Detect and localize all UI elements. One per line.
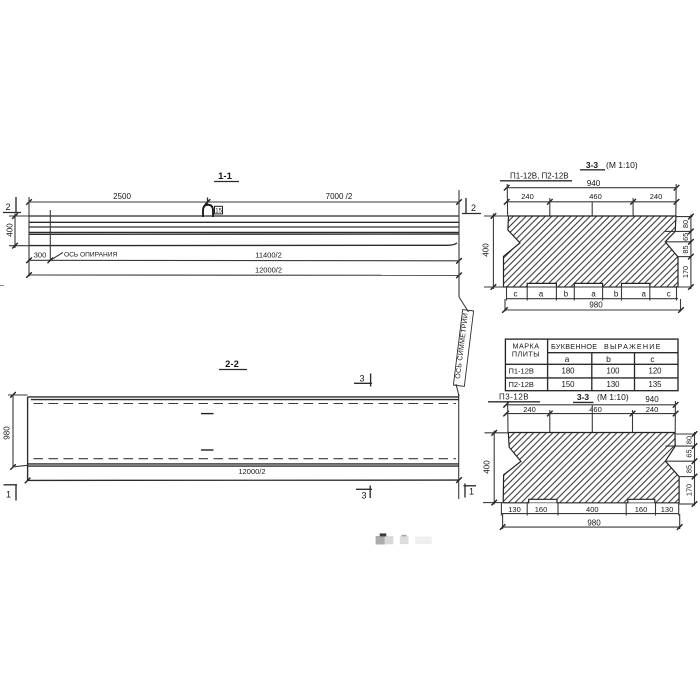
svg-text:a: a [539,290,544,299]
svg-text:3: 3 [361,491,366,501]
svg-text:a: a [642,290,647,299]
svg-text:1-1: 1-1 [218,171,232,182]
svg-text:(М 1:10): (М 1:10) [606,160,638,170]
svg-text:160: 160 [535,505,548,514]
svg-text:100: 100 [606,367,620,376]
svg-text:2-2: 2-2 [225,359,239,370]
svg-text:П1-12В: П1-12В [509,367,534,376]
svg-text:300: 300 [34,251,47,260]
svg-text:135: 135 [648,380,662,389]
svg-text:120: 120 [648,367,662,376]
svg-text:400: 400 [586,505,599,514]
svg-text:a: a [591,290,596,299]
svg-text:П1-12В, П2-12В: П1-12В, П2-12В [510,172,569,181]
svg-text:85: 85 [685,465,694,473]
svg-text:130: 130 [508,505,521,514]
svg-text:80: 80 [681,220,690,228]
svg-text:240: 240 [650,192,663,201]
svg-text:940: 940 [587,179,601,188]
svg-text:a: a [565,354,570,364]
svg-text:c: c [667,290,671,299]
svg-text:980: 980 [3,426,12,440]
svg-text:ОСЬ ОПИРАНИЯ: ОСЬ ОПИРАНИЯ [64,252,118,259]
svg-text:2: 2 [5,202,10,212]
svg-text:65: 65 [685,449,694,457]
svg-text:c: c [514,290,518,299]
svg-text:170: 170 [681,266,690,278]
svg-text:П3-12В: П3-12В [499,393,529,402]
svg-text:80: 80 [685,436,694,444]
svg-text:b: b [564,290,569,299]
svg-text:460: 460 [589,192,602,201]
svg-text:940: 940 [645,395,659,404]
svg-text:65: 65 [681,233,690,241]
svg-text:130: 130 [606,380,620,389]
svg-text:160: 160 [635,505,648,514]
svg-text:(М 1:10): (М 1:10) [597,392,629,402]
svg-text:ВЫРАЖЕНИЕ: ВЫРАЖЕНИЕ [604,342,662,351]
svg-text:БУКВЕННОЕ: БУКВЕННОЕ [551,342,597,351]
svg-text:11400/2: 11400/2 [255,251,282,260]
svg-text:150: 150 [561,380,575,389]
svg-text:b: b [606,354,611,364]
svg-text:240: 240 [646,405,659,414]
svg-text:460: 460 [589,405,602,414]
svg-text:П2-12В: П2-12В [509,380,534,389]
svg-text:12000/2: 12000/2 [255,265,282,274]
svg-text:3: 3 [359,374,364,384]
svg-text:15: 15 [215,209,222,215]
svg-text:400: 400 [483,460,492,474]
svg-text:170: 170 [685,484,694,496]
svg-text:400: 400 [6,223,15,237]
svg-text:b: b [614,290,619,299]
svg-text:85: 85 [681,245,690,253]
svg-text:1: 1 [6,490,11,500]
svg-text:12000/2: 12000/2 [238,467,265,476]
svg-text:130: 130 [661,505,674,514]
svg-text:2: 2 [471,203,476,213]
svg-text:400: 400 [482,243,491,257]
svg-text:980: 980 [587,518,601,527]
svg-text:240: 240 [521,192,534,201]
svg-text:2500: 2500 [113,192,131,201]
svg-text:7000 /2: 7000 /2 [326,192,353,201]
svg-text:1: 1 [469,487,474,497]
svg-text:3-3: 3-3 [586,160,599,170]
svg-text:980: 980 [589,301,603,310]
svg-text:ПЛИТЫ: ПЛИТЫ [512,350,540,359]
svg-text:240: 240 [523,405,536,414]
svg-text:180: 180 [561,367,575,376]
svg-text:3-3: 3-3 [577,392,590,402]
